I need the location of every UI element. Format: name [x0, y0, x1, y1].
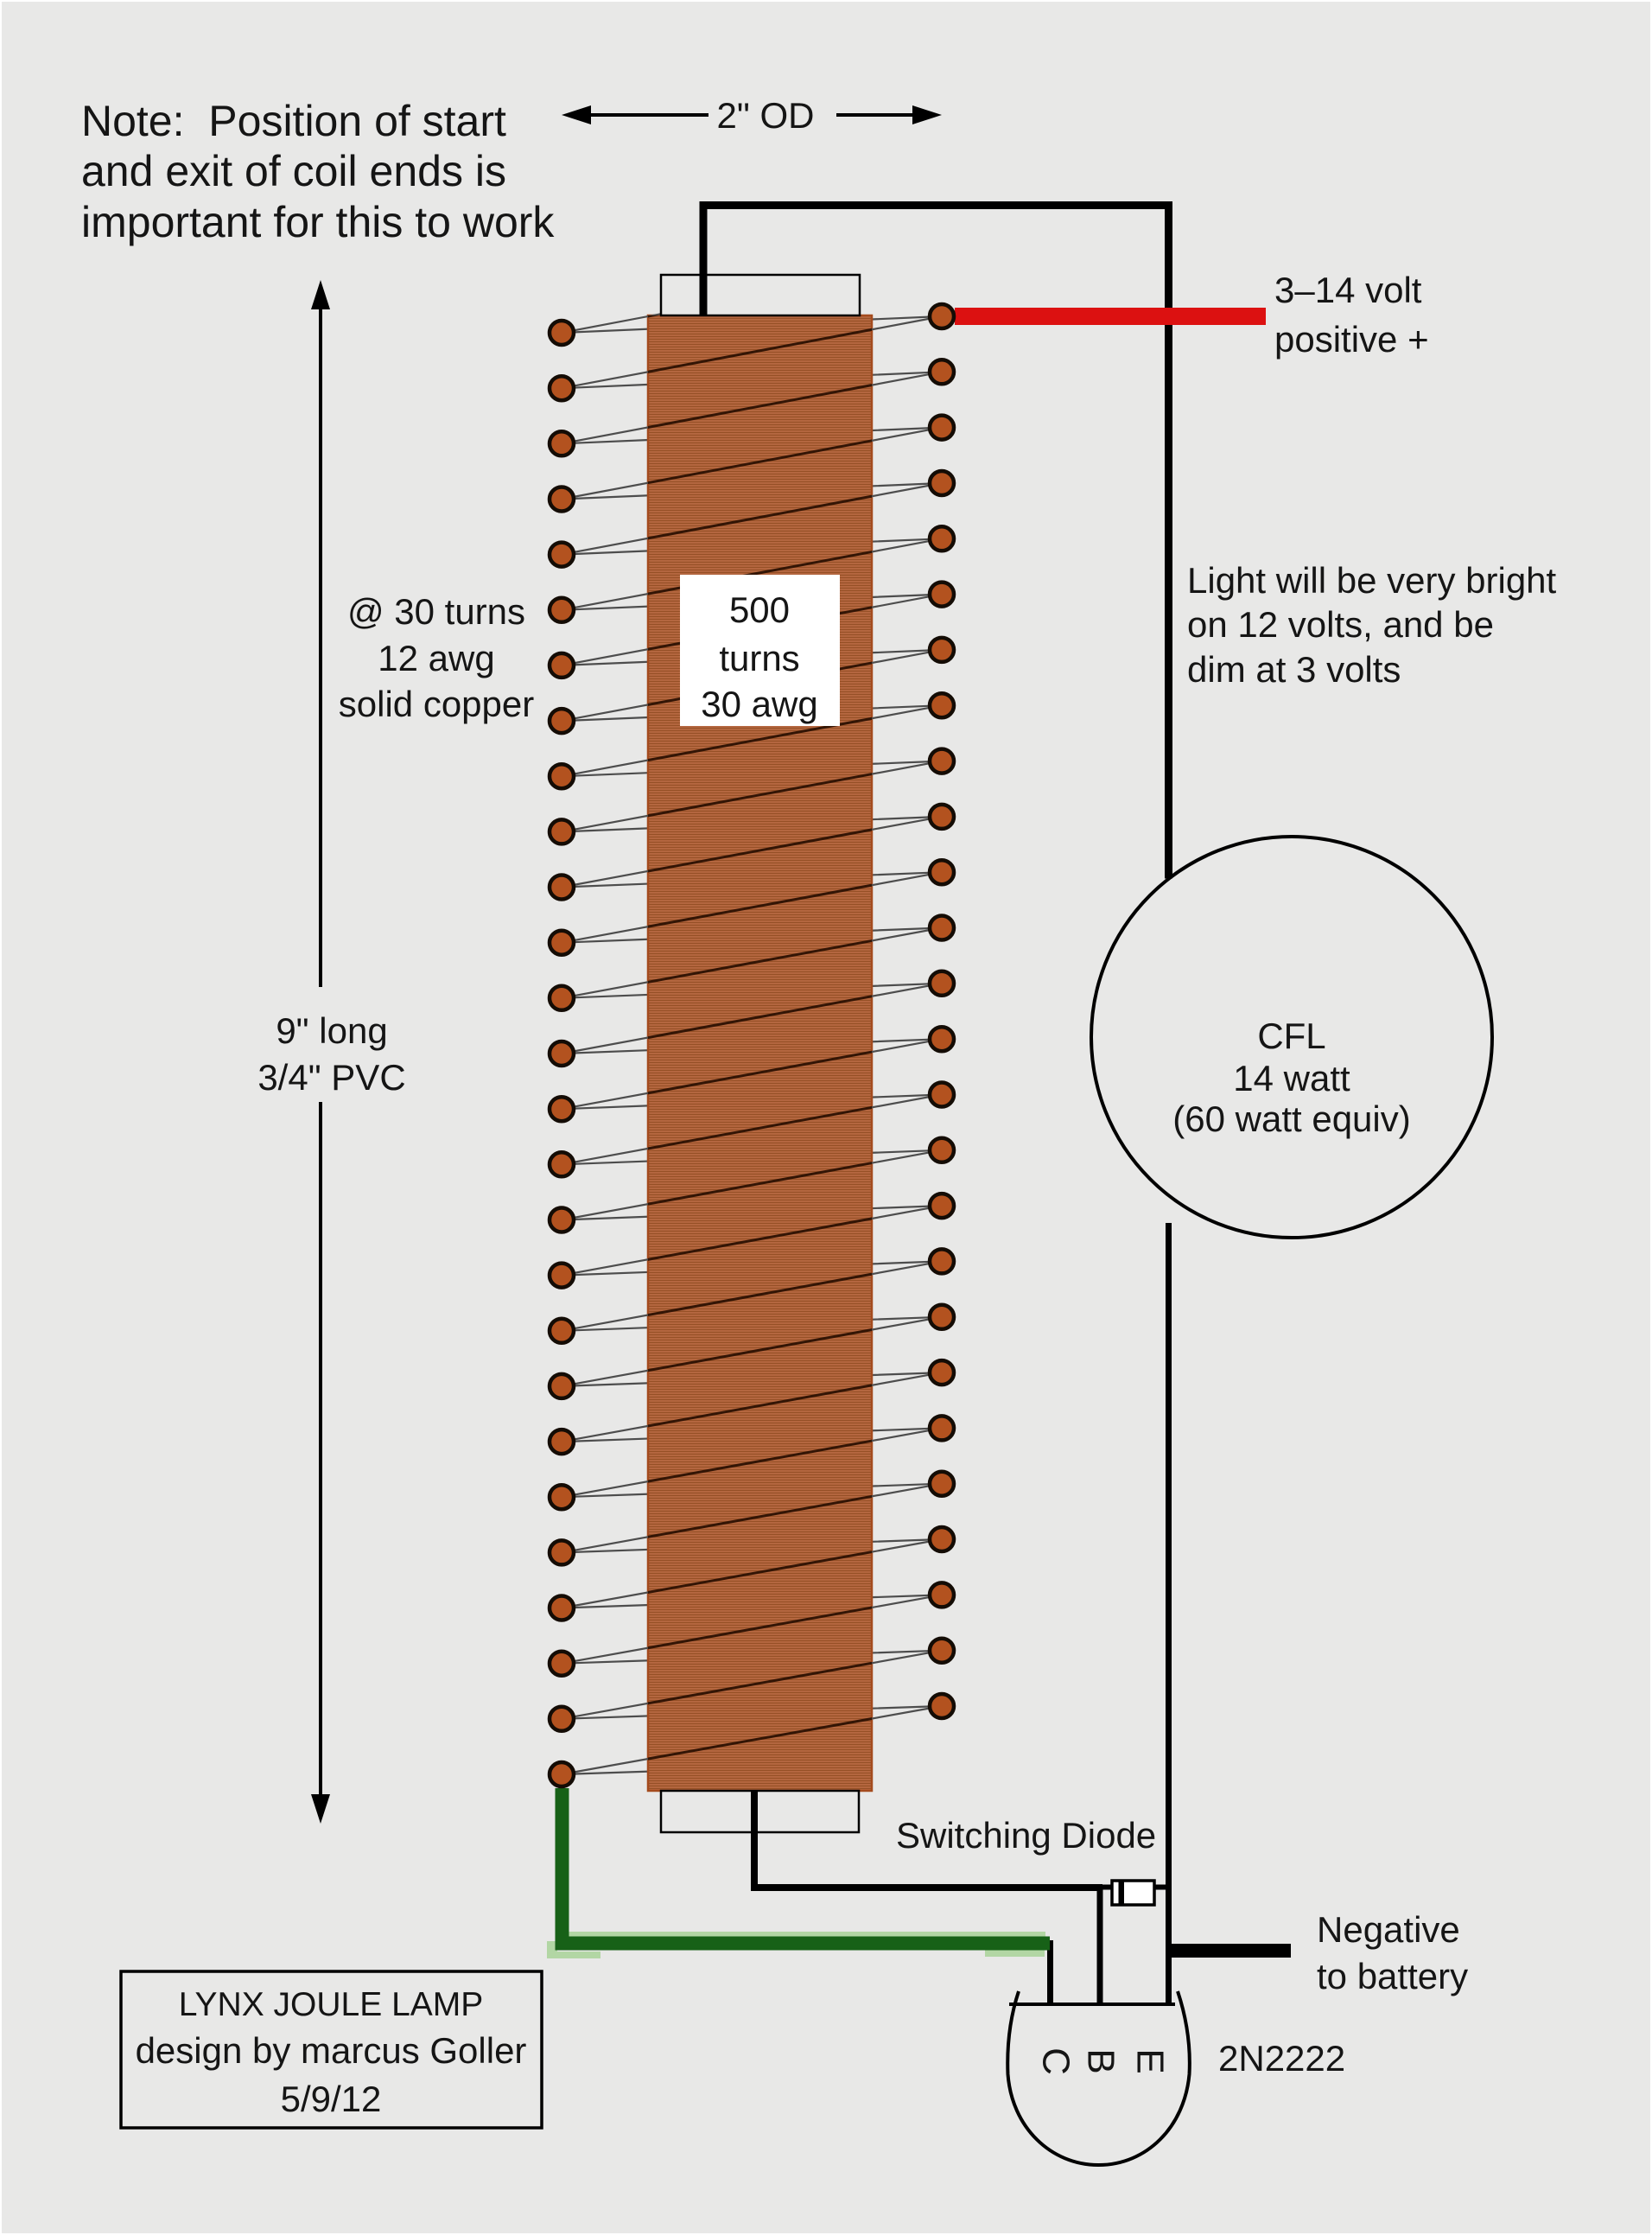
svg-text:2" OD: 2" OD — [717, 95, 815, 136]
svg-text:Note: Position of start: Note: Position of start — [81, 97, 506, 145]
svg-text:C: C — [1035, 2047, 1077, 2075]
svg-text:9" long: 9" long — [276, 1010, 387, 1051]
svg-text:Negative: Negative — [1317, 1909, 1460, 1950]
svg-text:@ 30 turns: @ 30 turns — [347, 591, 525, 632]
svg-text:and exit of coil ends is: and exit of coil ends is — [81, 147, 506, 195]
svg-text:on 12 volts, and be: on 12 volts, and be — [1187, 604, 1494, 645]
svg-text:turns: turns — [719, 638, 799, 678]
svg-text:dim at 3 volts: dim at 3 volts — [1187, 649, 1401, 690]
svg-text:3–14 volt: 3–14 volt — [1274, 270, 1422, 310]
svg-text:12 awg: 12 awg — [378, 638, 494, 678]
svg-text:(60 watt equiv): (60 watt equiv) — [1172, 1098, 1410, 1139]
svg-text:to battery: to battery — [1317, 1956, 1468, 1996]
svg-text:LYNX JOULE LAMP: LYNX JOULE LAMP — [179, 1986, 484, 2023]
svg-text:30 awg: 30 awg — [701, 684, 817, 724]
svg-text:B: B — [1080, 2048, 1122, 2073]
svg-text:CFL: CFL — [1257, 1016, 1325, 1056]
svg-text:important for this to work: important for this to work — [81, 198, 555, 246]
svg-text:14 watt: 14 watt — [1233, 1058, 1350, 1098]
svg-text:2N2222: 2N2222 — [1218, 2038, 1345, 2079]
svg-text:Light will be very bright: Light will be very bright — [1187, 560, 1557, 601]
svg-text:5/9/12: 5/9/12 — [281, 2079, 382, 2119]
svg-text:design by marcus Goller: design by marcus Goller — [136, 2030, 527, 2071]
svg-text:Switching Diode: Switching Diode — [896, 1815, 1156, 1856]
svg-text:solid copper: solid copper — [339, 684, 534, 724]
svg-text:3/4" PVC: 3/4" PVC — [257, 1057, 405, 1098]
svg-text:500: 500 — [729, 589, 790, 630]
svg-text:E: E — [1129, 2048, 1172, 2073]
svg-text:positive +: positive + — [1274, 319, 1429, 360]
